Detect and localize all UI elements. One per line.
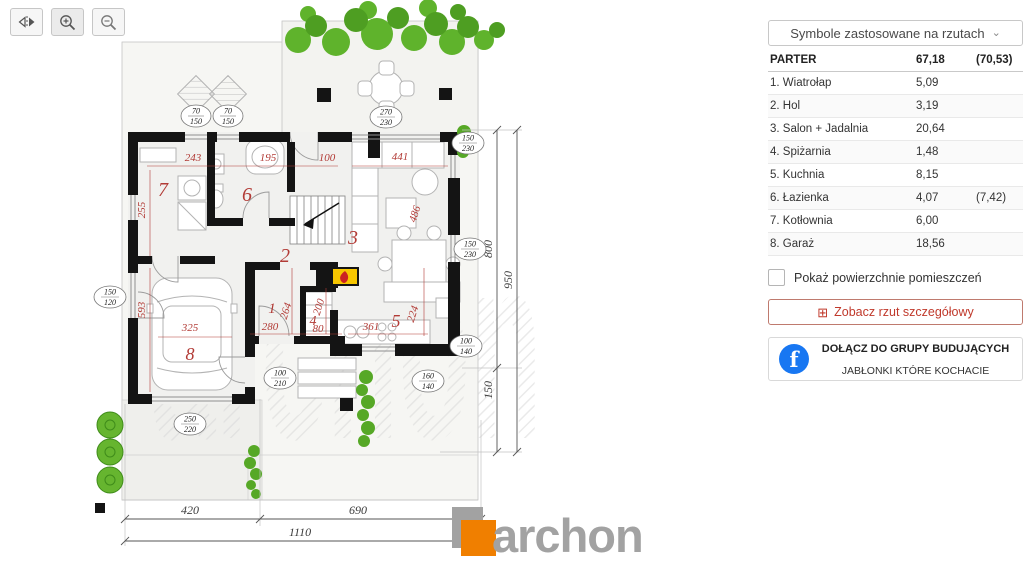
dim-1110: 1110 bbox=[289, 525, 311, 539]
archon-logo: archon bbox=[452, 507, 643, 562]
room-areas-table: PARTER 67,18 (70,53) 1. Wiatrołap 5,09 2… bbox=[768, 49, 1023, 256]
fireplace-icon bbox=[332, 268, 358, 285]
table-row: 3. Salon + Jadalnia 20,64 bbox=[768, 118, 1023, 141]
chevron-down-icon: ⌄ bbox=[992, 28, 1001, 39]
zoom-out-button[interactable] bbox=[92, 8, 125, 36]
floorplan-canvas[interactable]: archon PRAC bbox=[0, 0, 760, 563]
svg-text:250: 250 bbox=[184, 415, 196, 424]
table-row: 8. Garaż 18,56 bbox=[768, 233, 1023, 256]
dim-420: 420 bbox=[181, 503, 199, 517]
show-areas-checkbox[interactable] bbox=[768, 269, 785, 286]
svg-text:230: 230 bbox=[462, 144, 474, 153]
table-row: 7. Kotłownia 6,00 bbox=[768, 210, 1023, 233]
table-row: 4. Spiżarnia 1,48 bbox=[768, 141, 1023, 164]
svg-text:100: 100 bbox=[274, 369, 286, 378]
svg-text:230: 230 bbox=[380, 118, 392, 127]
dim-690: 690 bbox=[349, 503, 367, 517]
svg-text:150: 150 bbox=[104, 288, 116, 297]
plan-toolbar bbox=[10, 8, 125, 36]
show-areas-label: Pokaż powierzchnie pomieszczeń bbox=[794, 271, 982, 285]
svg-text:120: 120 bbox=[104, 298, 116, 307]
room-2: 2 bbox=[280, 245, 290, 267]
svg-text:230: 230 bbox=[464, 250, 476, 259]
facebook-icon: f bbox=[779, 344, 809, 374]
svg-text:210: 210 bbox=[274, 379, 286, 388]
room-3: 3 bbox=[347, 227, 358, 249]
facebook-group-link[interactable]: f DOŁĄCZ DO GRUPY BUDUJĄCYCH JABŁONKI KT… bbox=[768, 337, 1023, 381]
floor-area-alt: (70,53) bbox=[974, 49, 1023, 72]
svg-text:270: 270 bbox=[380, 108, 392, 117]
dim-243: 243 bbox=[185, 152, 202, 164]
svg-text:150: 150 bbox=[222, 117, 234, 126]
zoom-in-button[interactable] bbox=[51, 8, 84, 36]
flip-horizontal-button[interactable] bbox=[10, 8, 43, 36]
dim-195: 195 bbox=[260, 152, 277, 164]
svg-text:150: 150 bbox=[462, 134, 474, 143]
table-row: 2. Hol 3,19 bbox=[768, 95, 1023, 118]
symbols-dropdown-label: Symbole zastosowane na rzutach bbox=[790, 26, 984, 41]
flip-horizontal-icon bbox=[18, 15, 36, 29]
floorplan-icon: ⊞ bbox=[817, 306, 828, 319]
svg-text:70: 70 bbox=[192, 107, 200, 116]
dim-950: 950 bbox=[501, 271, 515, 289]
symbols-dropdown[interactable]: Symbole zastosowane na rzutach ⌄ bbox=[768, 20, 1023, 46]
svg-text:160: 160 bbox=[422, 372, 434, 381]
floor-area: 67,18 bbox=[914, 49, 974, 72]
facebook-line2: JABŁONKI KTÓRE KOCHACIE bbox=[842, 365, 990, 377]
show-areas-row: Pokaż powierzchnie pomieszczeń bbox=[768, 269, 1023, 286]
dim-593: 593 bbox=[136, 301, 148, 318]
stairs bbox=[290, 196, 345, 244]
dim-361: 361 bbox=[362, 321, 380, 333]
dim-441: 441 bbox=[392, 151, 409, 163]
svg-text:150: 150 bbox=[464, 240, 476, 249]
svg-text:150: 150 bbox=[190, 117, 202, 126]
room-6: 6 bbox=[242, 184, 252, 206]
rooms-panel: Symbole zastosowane na rzutach ⌄ PARTER … bbox=[768, 20, 1023, 381]
room-4: 4 bbox=[310, 314, 317, 329]
dim-100: 100 bbox=[319, 152, 336, 164]
dim-255: 255 bbox=[136, 201, 148, 218]
svg-text:70: 70 bbox=[224, 107, 232, 116]
floorplan-page: archon PRAC bbox=[0, 0, 1024, 563]
svg-text:220: 220 bbox=[184, 425, 196, 434]
room-5: 5 bbox=[392, 311, 401, 331]
zoom-out-icon bbox=[100, 14, 117, 31]
dim-150: 150 bbox=[481, 381, 495, 399]
facebook-line1: DOŁĄCZ DO GRUPY BUDUJĄCYCH bbox=[822, 343, 1009, 355]
floor-name: PARTER bbox=[768, 49, 914, 72]
dim-325: 325 bbox=[181, 322, 199, 334]
detail-plan-button[interactable]: ⊞ Zobacz rzut szczegółowy bbox=[768, 299, 1023, 325]
svg-text:140: 140 bbox=[422, 382, 434, 391]
table-row: 1. Wiatrołap 5,09 bbox=[768, 72, 1023, 95]
table-row: 6. Łazienka 4,07 (7,42) bbox=[768, 187, 1023, 210]
svg-text:100: 100 bbox=[460, 337, 472, 346]
svg-text:140: 140 bbox=[460, 347, 472, 356]
room-8: 8 bbox=[186, 344, 195, 364]
archon-logo-text: archon bbox=[492, 509, 643, 562]
room-7: 7 bbox=[158, 179, 169, 201]
zoom-in-icon bbox=[59, 14, 76, 31]
table-row: 5. Kuchnia 8,15 bbox=[768, 164, 1023, 187]
table-header-row: PARTER 67,18 (70,53) bbox=[768, 49, 1023, 72]
room-1: 1 bbox=[268, 301, 276, 317]
detail-plan-button-label: Zobacz rzut szczegółowy bbox=[834, 305, 974, 319]
dim-280: 280 bbox=[262, 321, 279, 333]
